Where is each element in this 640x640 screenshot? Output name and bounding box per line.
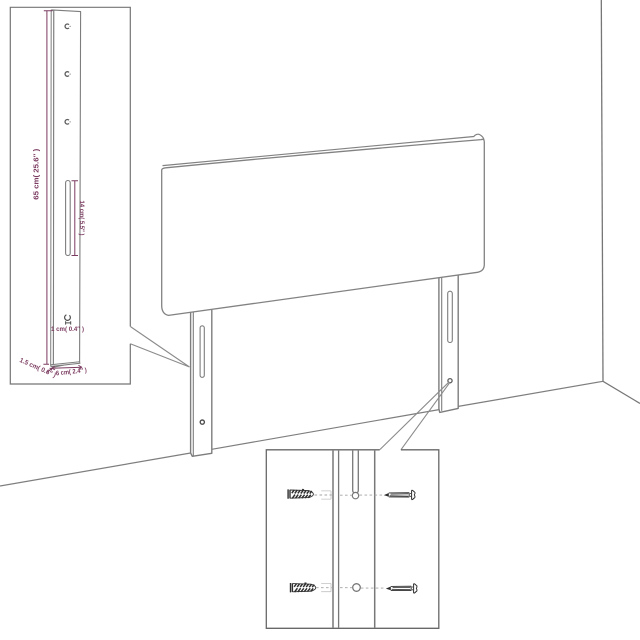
svg-text:65 cm( 25.6″ ): 65 cm( 25.6″ ) [32, 148, 41, 199]
svg-text:14 cm( 5.5″ ): 14 cm( 5.5″ ) [78, 201, 85, 236]
svg-text:1 cm( 0.4″ ): 1 cm( 0.4″ ) [51, 326, 84, 333]
